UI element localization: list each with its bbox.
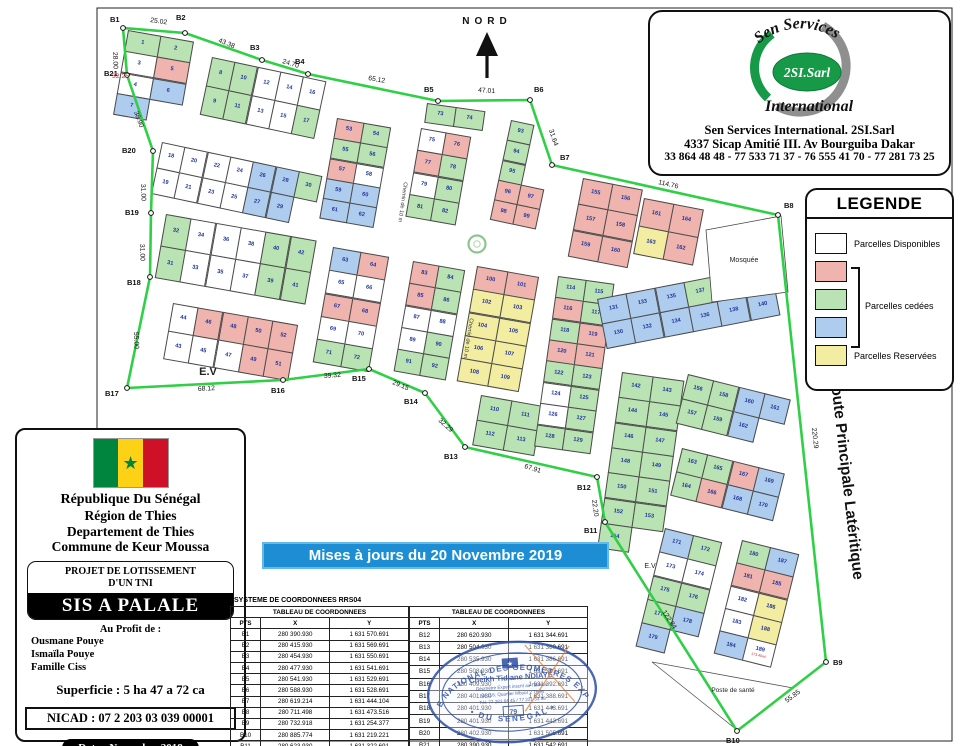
- col-y: Y: [509, 618, 588, 629]
- parcel-129: 129: [562, 428, 594, 454]
- parcel-162: 162: [663, 231, 699, 265]
- coord-row-B2: B2280 415.9301 631 569.691: [231, 640, 409, 651]
- project-box: PROJET DE LOTISSEMENT D'UN TNI SIS A PAL…: [27, 561, 234, 620]
- parcel-block: 7374: [424, 103, 485, 130]
- parcel-92: 92: [419, 354, 450, 381]
- parcel-51: 51: [263, 348, 294, 381]
- company-phones: 33 864 48 48 - 77 533 71 37 - 76 555 41 …: [650, 151, 949, 164]
- parcel-128: 128: [534, 424, 566, 450]
- beneficiary: Famille Ciss: [17, 661, 244, 674]
- logo-arc-text: Sen Services: [750, 15, 842, 47]
- departement-line: Departement de Thies: [17, 524, 244, 540]
- coordinates-table-left: TABLEAU DE COORDONNEES PTS X Y B1280 390…: [230, 606, 409, 746]
- commune-line: Commune de Keur Moussa: [17, 539, 244, 555]
- parcel-7: 7: [113, 93, 150, 121]
- parcel-block: 44464850524345474951: [163, 303, 298, 381]
- parcel-block: 93949596979899: [490, 120, 557, 230]
- parcel-153: 153: [632, 502, 667, 532]
- parcel-109: 109: [487, 363, 523, 392]
- profit-label: Au Profit de :: [17, 624, 244, 635]
- parcel-block: 1235467: [113, 30, 194, 126]
- parcel-73: 73: [424, 103, 456, 127]
- parcel-29: 29: [265, 192, 294, 223]
- logo-oval-text: 2SI.Sarl: [782, 65, 829, 80]
- parcel-block: 7576777879808182: [405, 128, 471, 225]
- parcel-99: 99: [512, 204, 540, 230]
- project-title-2: D'UN TNI: [28, 578, 233, 590]
- project-info-box: ★ République Du Sénégal Région de Thies …: [15, 428, 246, 742]
- svg-text:Sen Services: Sen Services: [750, 15, 842, 47]
- parcel-block: 110111112113: [472, 395, 543, 456]
- legend-item-reservees: Parcelles Reservées: [815, 345, 944, 366]
- coord-row-B9: B9280 732.9181 631 254.377: [231, 718, 409, 729]
- parcel-113: 113: [503, 425, 539, 456]
- legend: LEGENDE Parcelles Disponibles Parcelles …: [805, 188, 954, 391]
- coord-row-B5: B5280 541.9301 631 529.691: [231, 674, 409, 685]
- parcel-162: 162: [727, 411, 759, 443]
- legend-bracket: [851, 267, 860, 348]
- swatch-green: [815, 289, 847, 310]
- parcel-108: 108: [456, 358, 492, 387]
- parcel-block: 163165167169164166168170: [670, 448, 784, 521]
- parcel-block: 53545556575859606162: [319, 118, 391, 228]
- parcel-block: 155156157158159160: [568, 178, 643, 267]
- parcel-62: 62: [346, 203, 377, 229]
- coord-row-B3: B3280 454.9301 631 550.691: [231, 651, 409, 662]
- coord-row-B1: B1280 390.9301 631 570.691: [231, 629, 409, 640]
- company-address: 4337 Sicap Amitié III. Av Bourguiba Daka…: [650, 137, 949, 151]
- legend-label-cedees: Parcelles cedées: [865, 301, 934, 311]
- superficie: Superficie : 5 ha 47 a 72 ca: [17, 682, 244, 698]
- swatch-yellow: [815, 345, 847, 366]
- legend-label-reservees: Parcelles Reservées: [854, 351, 937, 361]
- date-pill: Date : Novembre 2018: [62, 739, 199, 746]
- company-logo: Sen Services 2SI.Sarl International: [651, 12, 949, 118]
- swatch-pink: [815, 261, 847, 282]
- logo-under-text: International: [763, 98, 853, 115]
- project-title-1: PROJET DE LOTISSEMENT: [28, 566, 233, 578]
- surveyor-stamp: ORDRE NATIONAL DES GEOMETRES EXPERTS • D…: [420, 632, 603, 746]
- nicad-number: NICAD : 07 2 203 03 039 00001: [25, 707, 236, 730]
- region-line: Région de Thies: [17, 508, 244, 524]
- parcel-30: 30: [294, 171, 323, 202]
- coord-row-B10: B10280 885.7741 631 219.221: [231, 730, 409, 741]
- update-banner-text: Mises à jours du 20 Novembre 2019: [309, 547, 562, 564]
- col-x: X: [261, 618, 330, 629]
- svg-text:★: ★: [507, 660, 514, 668]
- table-title: TABLEAU DE COORDONNEES: [410, 607, 588, 618]
- col-pts: PTS: [231, 618, 261, 629]
- parcel-42: 42: [285, 236, 316, 273]
- parcel-block: 83848586878889909192: [394, 261, 465, 381]
- legend-title: LEGENDE: [807, 190, 952, 219]
- parcel-block: 810121416911131517: [200, 57, 327, 139]
- legend-item-cedees-pink: [815, 261, 944, 282]
- legend-label-disponibles: Parcelles Disponibles: [854, 239, 940, 249]
- table-title: TABLEAU DE COORDONNEES: [231, 607, 409, 618]
- col-x: X: [440, 618, 509, 629]
- swatch-white: [815, 233, 847, 254]
- company-name: Sen Services International. 2SI.Sarl: [650, 123, 949, 137]
- coord-row-B11: B11280 623.9301 631 322.691: [231, 741, 409, 746]
- coord-row-B4: B4280 477.9301 631 541.691: [231, 662, 409, 673]
- parcel-72: 72: [340, 344, 373, 373]
- beneficiary: Ousmane Pouye: [17, 635, 244, 648]
- coord-row-B8: B8280 711.4981 631 473.516: [231, 707, 409, 718]
- coord-row-B7: B7280 619.2141 631 444.104: [231, 696, 409, 707]
- senegal-flag: ★: [93, 438, 169, 488]
- company-logo-box: Sen Services 2SI.Sarl International Sen …: [648, 10, 951, 176]
- parcel-17: 17: [291, 105, 321, 139]
- parcel-170: 170: [747, 490, 779, 521]
- stamp-number: 79: [509, 709, 517, 717]
- plan-document: 1235467810121416911131517182022242628301…: [0, 0, 960, 746]
- country-line: République Du Sénégal: [17, 492, 244, 508]
- beneficiary: Ismaïla Pouye: [17, 648, 244, 661]
- parcel-block: 323436384042313335373941: [155, 214, 316, 304]
- parcel-block: 100101102103104105106107108109: [457, 266, 539, 392]
- parcel-140: 140: [746, 290, 780, 321]
- project-name: SIS A PALALE: [28, 593, 233, 619]
- coord-row-B6: B6280 588.9301 631 528.691: [231, 685, 409, 696]
- parcel-block: 180187181185182186183188184189173.45m²: [714, 540, 799, 668]
- parcel-block: 161164163162: [633, 198, 704, 265]
- swatch-blue: [815, 317, 847, 338]
- col-y: Y: [330, 618, 409, 629]
- col-pts: PTS: [410, 618, 440, 629]
- parcel-160: 160: [597, 235, 633, 267]
- update-banner: Mises à jours du 20 Novembre 2019: [262, 542, 609, 569]
- parcel-74: 74: [453, 107, 485, 131]
- parcel-block: 63646566676869707172: [313, 247, 389, 372]
- parcel-82: 82: [430, 198, 460, 225]
- coordinate-system-title: SYSTEME DE COORDONNEES RRS04: [234, 597, 588, 604]
- legend-item-disponibles: Parcelles Disponibles: [815, 233, 944, 254]
- parcel-block: 156158160161157159162: [676, 374, 791, 449]
- parcel-41: 41: [280, 268, 311, 305]
- parcel-block: 131133135137139141264.19m²13013213413613…: [597, 265, 780, 349]
- legend-item-cedees-blue: [815, 317, 944, 338]
